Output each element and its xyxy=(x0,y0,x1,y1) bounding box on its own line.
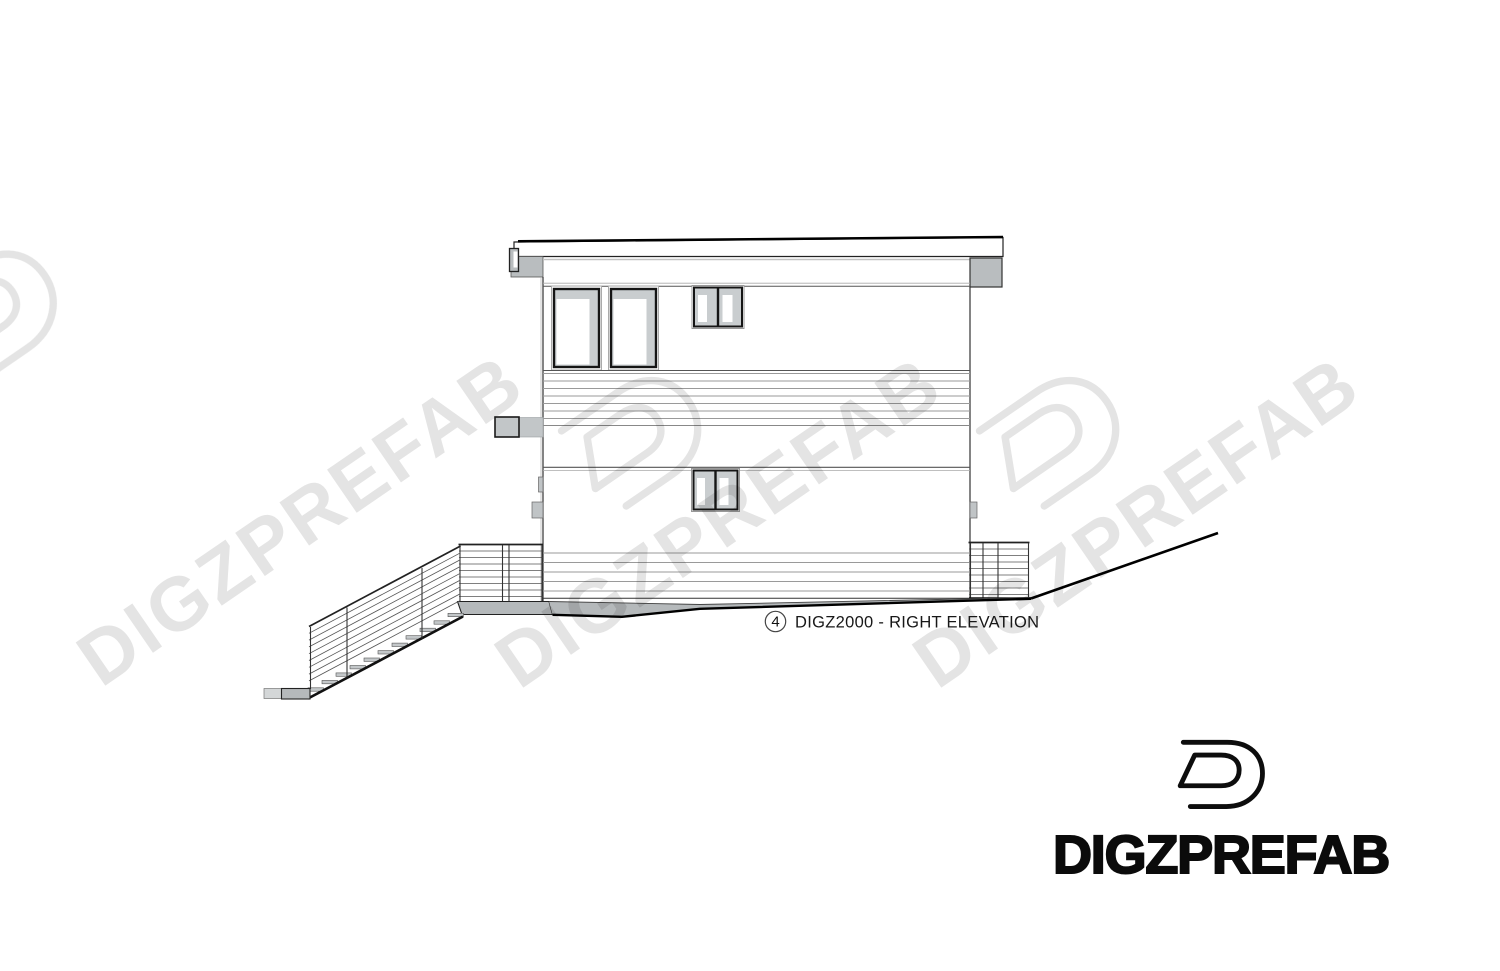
upper-window-1 xyxy=(552,286,602,370)
view-title: DIGZ2000 - RIGHT ELEVATION xyxy=(795,614,1039,632)
stair-stringer xyxy=(308,617,463,699)
view-number: 4 xyxy=(771,614,779,631)
fascia-return-right xyxy=(970,258,1002,287)
stair-treads xyxy=(308,613,464,691)
window-pane xyxy=(557,299,590,365)
window-pane xyxy=(723,295,733,322)
upper-window-2 xyxy=(609,286,659,370)
footer-branding: DIGZPREFAB xyxy=(1053,742,1389,885)
stair-top-rail xyxy=(309,546,461,627)
stair-railing xyxy=(309,546,461,689)
landing-extension xyxy=(264,689,282,699)
window-pane xyxy=(698,295,707,322)
window-pane xyxy=(614,299,647,365)
wall-fixture-right xyxy=(970,502,977,518)
digzprefab-logo-icon xyxy=(1180,742,1262,806)
view-label: 4 DIGZ2000 - RIGHT ELEVATION xyxy=(765,611,1039,631)
right-elevation-drawing: DIGZPREFAB DIGZPREFAB DIGZPREFAB 4 DIGZ2… xyxy=(0,0,1500,971)
watermark-logo-icon xyxy=(0,236,73,389)
gutter-bracket-notch xyxy=(514,252,518,268)
watermark-text: DIGZPREFAB xyxy=(63,338,540,702)
drawing-sheet: DIGZPREFAB DIGZPREFAB DIGZPREFAB 4 DIGZ2… xyxy=(0,0,1500,971)
wall-fixture-left-small xyxy=(539,477,544,492)
digzprefab-wordmark: DIGZPREFAB xyxy=(1053,825,1389,885)
upper-slider-window xyxy=(692,286,744,329)
landing-pad xyxy=(282,689,311,700)
wall-fixture-left xyxy=(532,502,543,518)
